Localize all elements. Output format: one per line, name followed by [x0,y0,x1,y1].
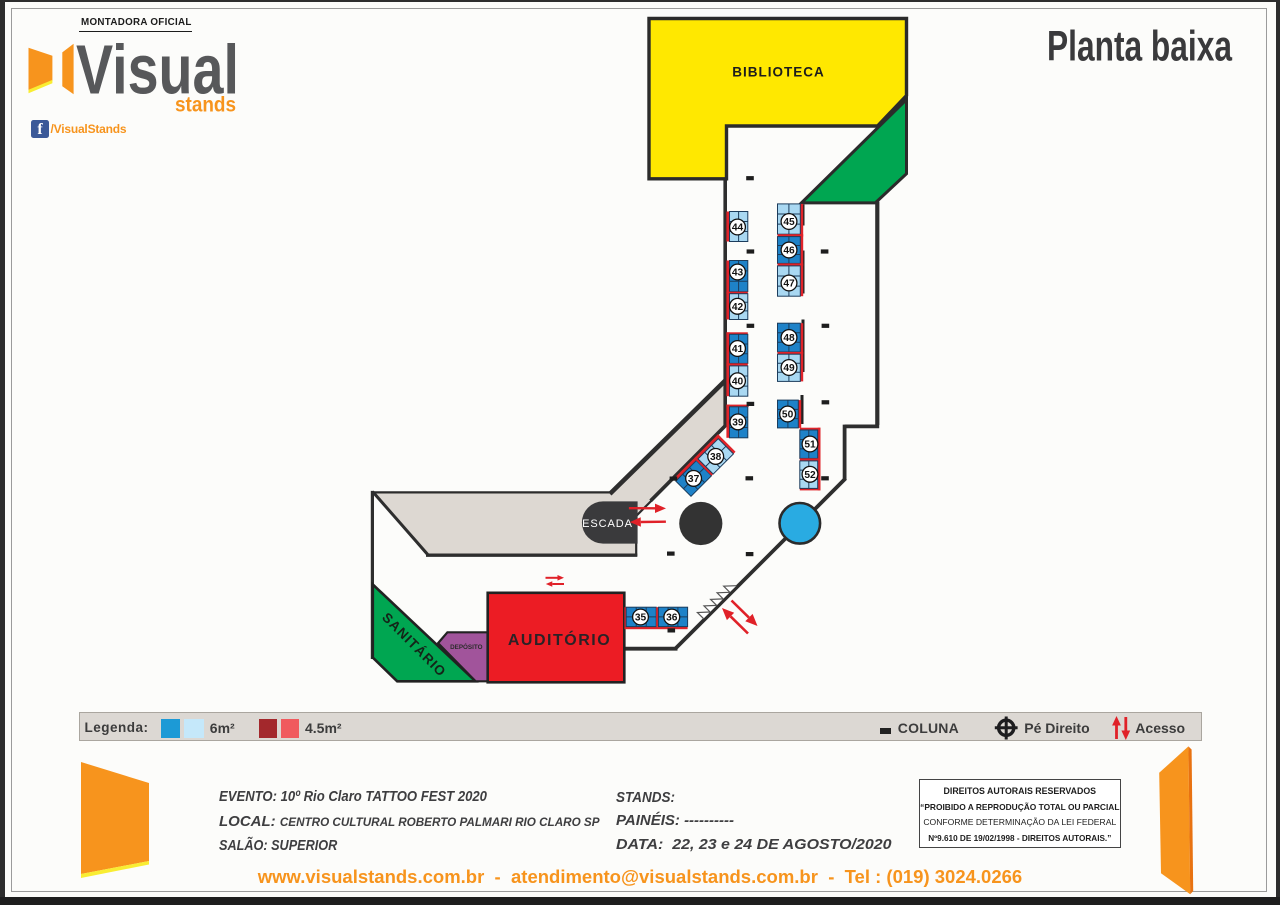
svg-text:37: 37 [688,474,700,485]
svg-text:42: 42 [732,302,744,313]
svg-text:35: 35 [635,613,647,624]
svg-text:AUDITÓRIO: AUDITÓRIO [508,630,611,649]
svg-text:45: 45 [783,217,795,228]
svg-text:38: 38 [710,452,722,463]
svg-text:BIBLIOTECA: BIBLIOTECA [732,65,825,80]
svg-text:39: 39 [732,418,744,429]
svg-text:ESCADA: ESCADA [582,518,633,530]
svg-text:51: 51 [804,440,816,451]
svg-text:DEPÓSITO: DEPÓSITO [450,642,483,651]
svg-text:40: 40 [732,377,744,388]
svg-text:43: 43 [732,268,744,279]
svg-text:50: 50 [782,410,794,421]
svg-text:52: 52 [804,470,816,481]
svg-text:41: 41 [732,344,744,355]
svg-text:49: 49 [783,363,795,374]
svg-text:36: 36 [666,613,678,624]
svg-text:46: 46 [783,246,795,257]
svg-text:47: 47 [783,279,795,290]
svg-text:48: 48 [783,333,795,344]
svg-text:44: 44 [732,223,744,234]
